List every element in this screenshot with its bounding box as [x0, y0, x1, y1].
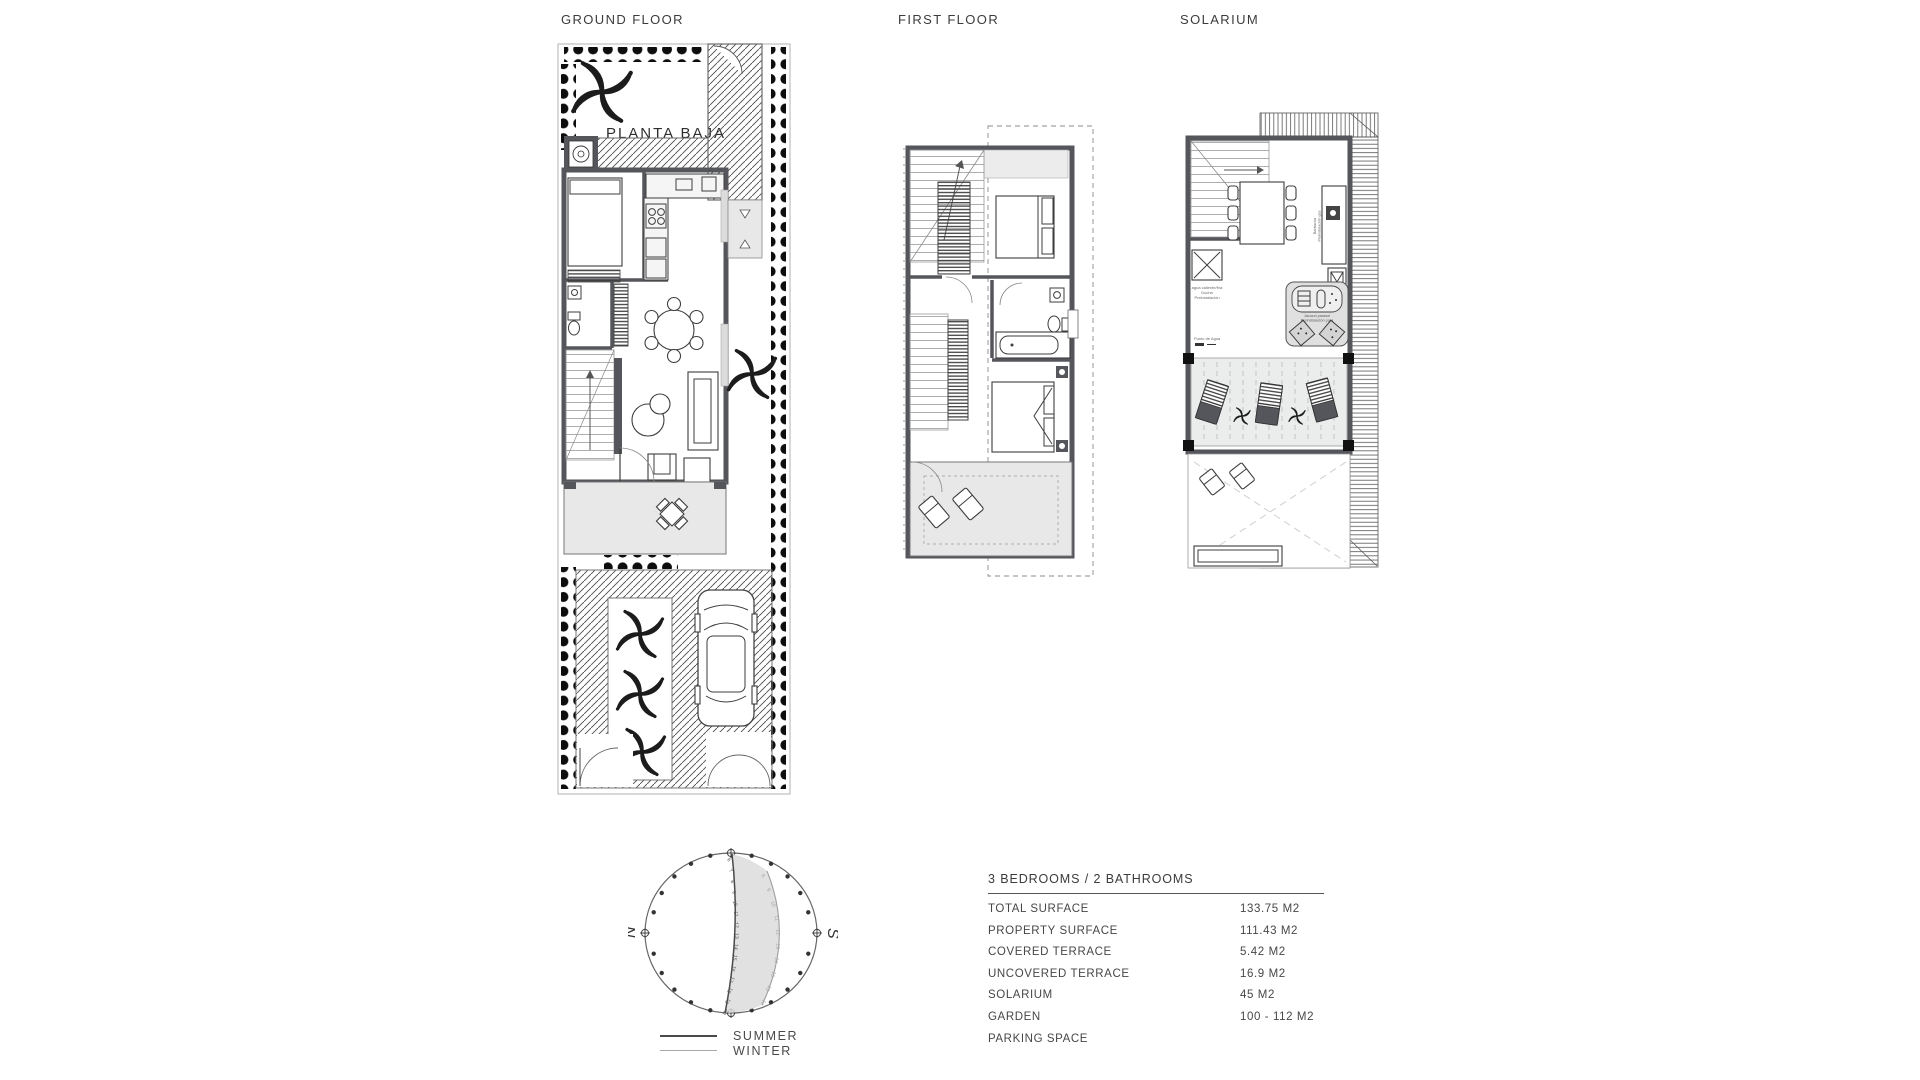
spec-label: COVERED TERRACE: [988, 946, 1112, 958]
table-row: UNCOVERED TERRACE 16.9 M2: [988, 968, 1324, 990]
outdoor-dining-table: [1228, 182, 1296, 244]
specifications-table: 3 BEDROOMS / 2 BATHROOMS TOTAL SURFACE 1…: [988, 872, 1324, 1054]
svg-text:Preinstalación gas: Preinstalación gas: [1318, 210, 1322, 241]
spec-value: 5.42 M2: [1240, 946, 1286, 958]
ground-floor-title: GROUND FLOOR: [561, 12, 684, 27]
spec-label: PARKING SPACE: [988, 1033, 1088, 1045]
svg-text:Punto de Agua: Punto de Agua: [1194, 336, 1221, 341]
water-point: Punto de Agua: [1194, 336, 1221, 346]
staircase-lower: [910, 314, 968, 430]
svg-text:Barbacoa: Barbacoa: [1313, 217, 1317, 234]
first-floor-title: FIRST FLOOR: [898, 12, 999, 27]
bbq-annotation: Barbacoa Preinstalación gas: [1313, 210, 1322, 241]
staircase: [566, 350, 622, 460]
spec-value: 45 M2: [1240, 989, 1275, 1001]
jacuzzi-preinstall: Jacuzzi parasol Preinstalación para: [1286, 282, 1348, 346]
bathroom: [996, 283, 1078, 358]
summer-line-swatch: [660, 1035, 717, 1037]
bedroom-bed: [568, 178, 622, 282]
table-row: SOLARIUM 45 M2: [988, 989, 1324, 1011]
svg-text:14: 14: [732, 943, 739, 950]
spec-value: 16.9 M2: [1240, 968, 1286, 980]
sun-legend: SUMMER WINTER: [660, 1028, 798, 1058]
svg-text:12: 12: [774, 929, 780, 935]
floorplan-sheet: GROUND FLOOR FIRST FLOOR SOLARIUM PLANTA…: [0, 0, 1920, 1080]
first-floor-plan: [884, 100, 1104, 580]
door-arc: [946, 277, 972, 303]
terrace: [910, 462, 1072, 556]
north-label: N: [628, 926, 639, 938]
utility-room: [564, 136, 598, 172]
table-row: GARDEN 100 - 112 M2: [988, 1011, 1324, 1033]
summer-label: SUMMER: [733, 1029, 798, 1043]
spec-label: GARDEN: [988, 1011, 1041, 1023]
specs-title: 3 BEDROOMS / 2 BATHROOMS: [988, 872, 1324, 894]
spec-value: 100 - 112 M2: [1240, 1011, 1314, 1023]
spec-label: UNCOVERED TERRACE: [988, 968, 1130, 980]
svg-text:13: 13: [774, 943, 780, 949]
winter-line-swatch: [660, 1050, 717, 1051]
spec-label: PROPERTY SURFACE: [988, 925, 1118, 937]
lower-roof-area: [1188, 454, 1350, 568]
solarium-plan: Barbacoa Preinstalación gas agua calient…: [1164, 110, 1394, 590]
winter-legend-row: WINTER: [660, 1043, 798, 1058]
svg-text:Preinstalación: Preinstalación: [1194, 295, 1219, 300]
south-label: S: [824, 928, 838, 939]
ground-floor-plan: PLANTA BAJA: [556, 42, 796, 798]
table-row: COVERED TERRACE 5.42 M2: [988, 946, 1324, 968]
solarium-title: SOLARIUM: [1180, 12, 1259, 27]
gallery-band: [984, 150, 1068, 178]
svg-text:12: 12: [733, 922, 740, 928]
car: [695, 590, 757, 726]
spec-label: TOTAL SURFACE: [988, 903, 1089, 915]
spec-label: SOLARIUM: [988, 989, 1053, 1001]
covered-terrace: [564, 482, 726, 554]
summer-legend-row: SUMMER: [660, 1028, 798, 1043]
spec-value: 111.43 M2: [1240, 925, 1298, 937]
svg-text:13: 13: [733, 933, 739, 939]
winter-label: WINTER: [733, 1044, 792, 1058]
table-row: TOTAL SURFACE 133.75 M2: [988, 903, 1324, 925]
spec-value: 133.75 M2: [1240, 903, 1300, 915]
bedroom2-bed: [992, 366, 1068, 452]
table-row: PARKING SPACE: [988, 1033, 1324, 1055]
wardrobe: [938, 182, 970, 274]
table-row: PROPERTY SURFACE 111.43 M2: [988, 925, 1324, 947]
bedroom1-bed: [996, 196, 1054, 258]
svg-text:Jacuzzi parasol: Jacuzzi parasol: [1304, 314, 1330, 318]
bbq-counter: [1322, 186, 1346, 296]
shower-preinstall: agua caliente/fría Ducha Preinstalación: [1192, 250, 1223, 300]
pergola: [1183, 353, 1354, 451]
